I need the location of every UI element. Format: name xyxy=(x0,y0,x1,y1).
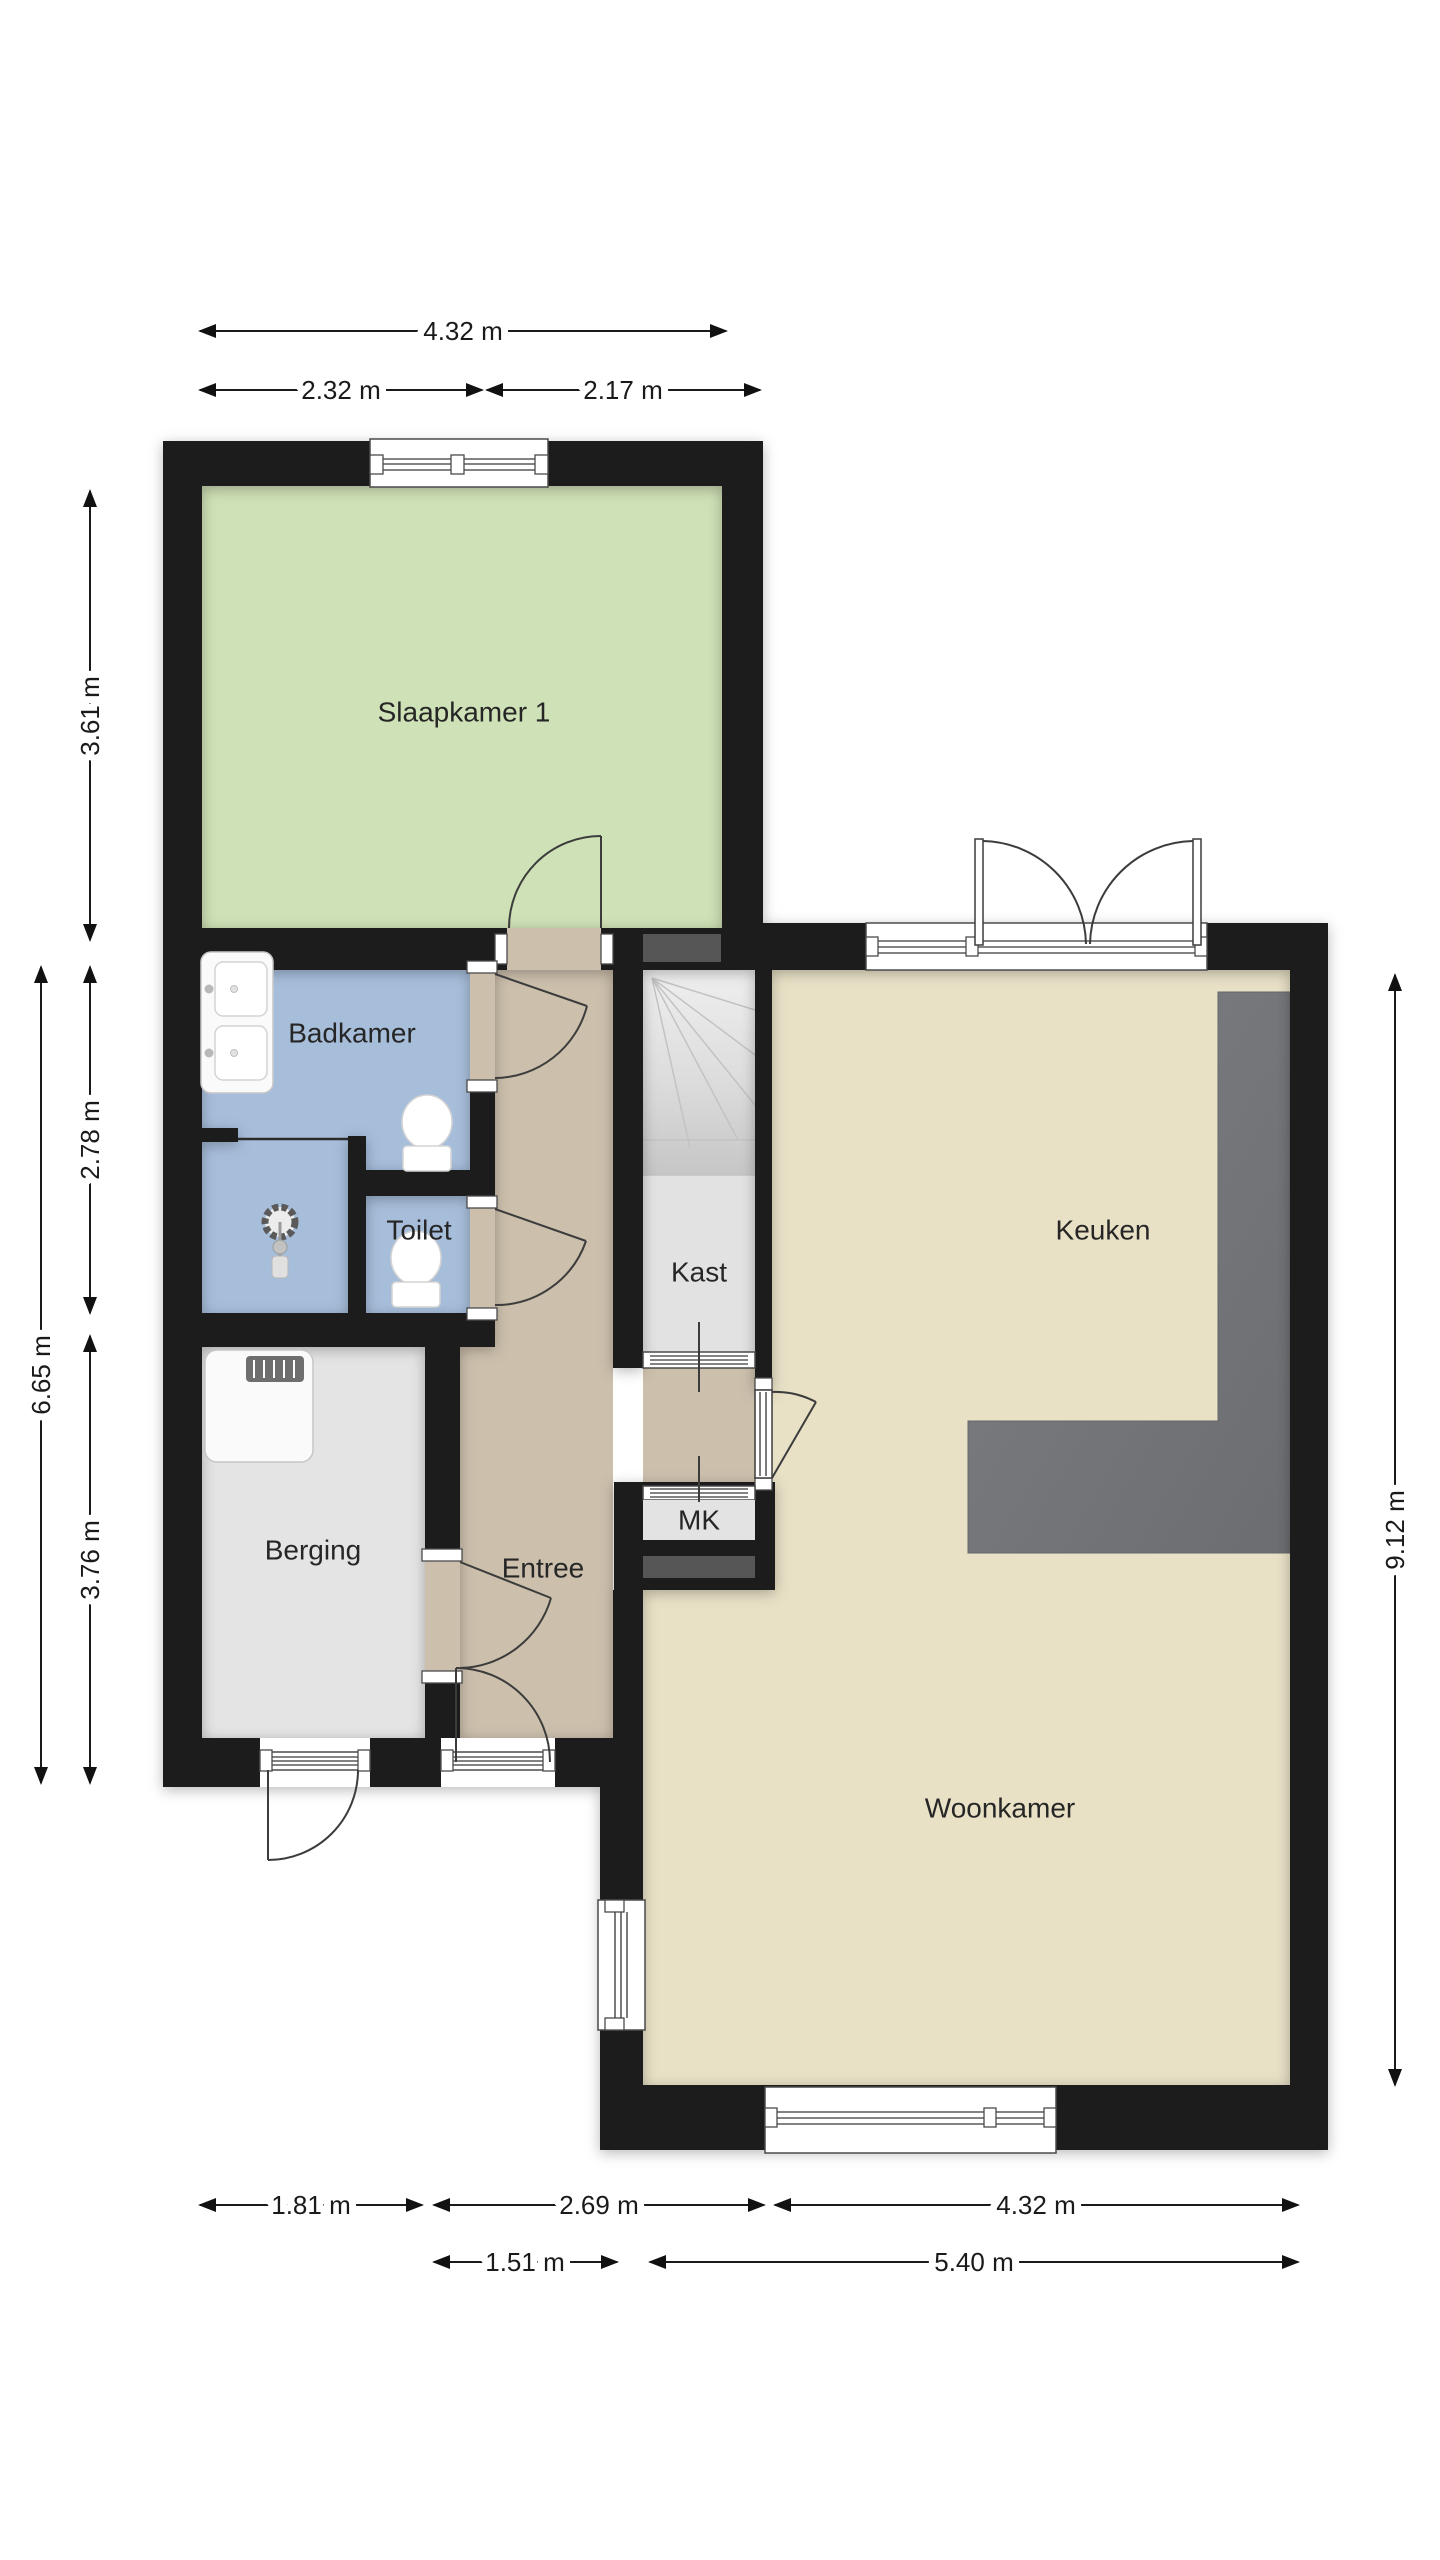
dim-left-total: 6.65 m xyxy=(26,1335,56,1415)
label-badkamer: Badkamer xyxy=(288,1018,416,1049)
dim-top-left: 2.32 m xyxy=(301,375,381,405)
wall-niche-stairs xyxy=(643,934,721,962)
label-woonkamer: Woonkamer xyxy=(925,1793,1075,1824)
label-berging: Berging xyxy=(265,1535,362,1566)
label-toilet: Toilet xyxy=(386,1215,452,1246)
label-entree: Entree xyxy=(502,1553,585,1584)
dim-top-right: 2.17 m xyxy=(583,375,663,405)
label-keuken: Keuken xyxy=(1056,1215,1151,1246)
dim-left-berging: 3.76 m xyxy=(75,1520,105,1600)
toilet-badkamer-icon xyxy=(402,1095,452,1171)
window-slaapkamer xyxy=(370,439,548,487)
door-berging-exterior xyxy=(260,1738,370,1860)
boiler-icon xyxy=(205,1350,313,1462)
label-mk: MK xyxy=(678,1505,720,1536)
dim-right-total: 9.12 m xyxy=(1380,1490,1410,1570)
dim-bottom-living-total: 5.40 m xyxy=(934,2247,1014,2277)
dim-bottom-woonkamer: 4.32 m xyxy=(996,2190,1076,2220)
dim-bottom-berging: 1.81 m xyxy=(271,2190,351,2220)
staircase xyxy=(643,970,755,1352)
label-slaapkamer-1: Slaapkamer 1 xyxy=(378,697,551,728)
dim-left-badkamer: 2.78 m xyxy=(75,1100,105,1180)
label-kast: Kast xyxy=(671,1257,727,1288)
wall-niche-mk xyxy=(643,1556,755,1578)
dim-bottom-hal: 1.51 m xyxy=(485,2247,565,2277)
window-woonkamer-south xyxy=(765,2087,1056,2153)
dim-left-slaapkamer: 3.61 m xyxy=(75,676,105,756)
double-washbasin-icon xyxy=(201,952,273,1093)
dim-bottom-entree: 2.69 m xyxy=(559,2190,639,2220)
floor-plan: Slaapkamer 1 Badkamer Toilet Berging Ent… xyxy=(0,0,1440,2560)
floor-plan-page: Slaapkamer 1 Badkamer Toilet Berging Ent… xyxy=(0,0,1440,2560)
window-woonkamer-west xyxy=(598,1900,645,2030)
dim-top-total: 4.32 m xyxy=(423,316,503,346)
window-keuken xyxy=(866,923,1207,970)
